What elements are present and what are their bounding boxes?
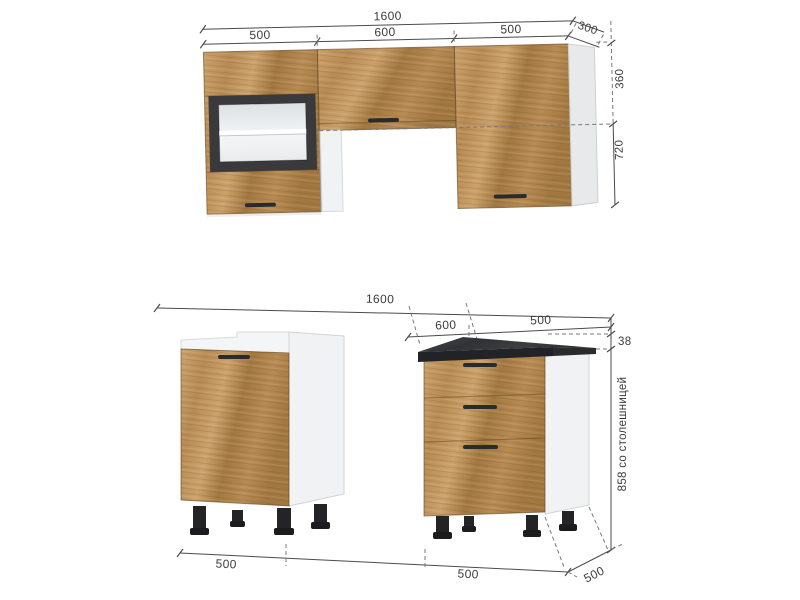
kitchen-dimension-drawing: 1600 500 600 500 300 360 720 — [0, 0, 800, 600]
dim-upper-left-width: 500 — [249, 28, 271, 42]
dim-lower-right-width: 500 — [530, 313, 552, 328]
dim-upper-right-width: 500 — [500, 22, 522, 36]
dim-countertop-thickness: 38 — [618, 336, 631, 348]
door-handle — [368, 118, 399, 123]
drawer-handle — [463, 405, 497, 409]
upper-middle-wall-cabinet — [317, 47, 458, 212]
lower-dimensions-bottom: 500 500 500 — [177, 507, 623, 585]
dim-lower-depth: 500 — [582, 563, 607, 585]
cabinet-side-panel — [289, 332, 344, 506]
lower-left-base-cabinet — [181, 332, 344, 535]
cabinet-legs — [190, 504, 330, 535]
cabinet-side-panel — [545, 348, 589, 514]
lower-cabinets-drawing: 1600 600 500 — [154, 292, 631, 586]
drawer-handle — [463, 445, 498, 449]
dim-lower-right-width-bottom: 500 — [457, 566, 479, 581]
door-handle — [218, 355, 250, 359]
dim-height-with-countertop: 858 со столешницей — [617, 377, 629, 492]
dim-upper-total-width: 1600 — [373, 9, 402, 24]
countertop-side-edge — [553, 347, 596, 356]
lower-right-base-cabinet — [418, 337, 596, 539]
upper-right-wall-cabinet — [454, 44, 572, 209]
dim-lower-gap-width: 600 — [435, 318, 457, 333]
dim-upper-total-height: 720 — [614, 140, 626, 160]
upper-left-wall-cabinet — [203, 50, 321, 218]
dim-upper-depth: 300 — [576, 20, 599, 38]
door-handle — [494, 194, 527, 199]
dim-upper-cabinet-height: 360 — [614, 69, 626, 89]
cabinet-side-panel — [320, 130, 343, 211]
lower-dimensions-top: 1600 600 500 — [154, 292, 614, 345]
dim-lower-total-width: 1600 — [366, 292, 395, 307]
drawer-handle — [463, 363, 497, 367]
door-handle — [245, 203, 276, 208]
upper-cabinets-drawing: 1600 500 600 500 300 360 720 — [200, 4, 630, 218]
dim-upper-middle-width: 600 — [374, 25, 396, 39]
dim-lower-left-width-bottom: 500 — [215, 556, 237, 571]
